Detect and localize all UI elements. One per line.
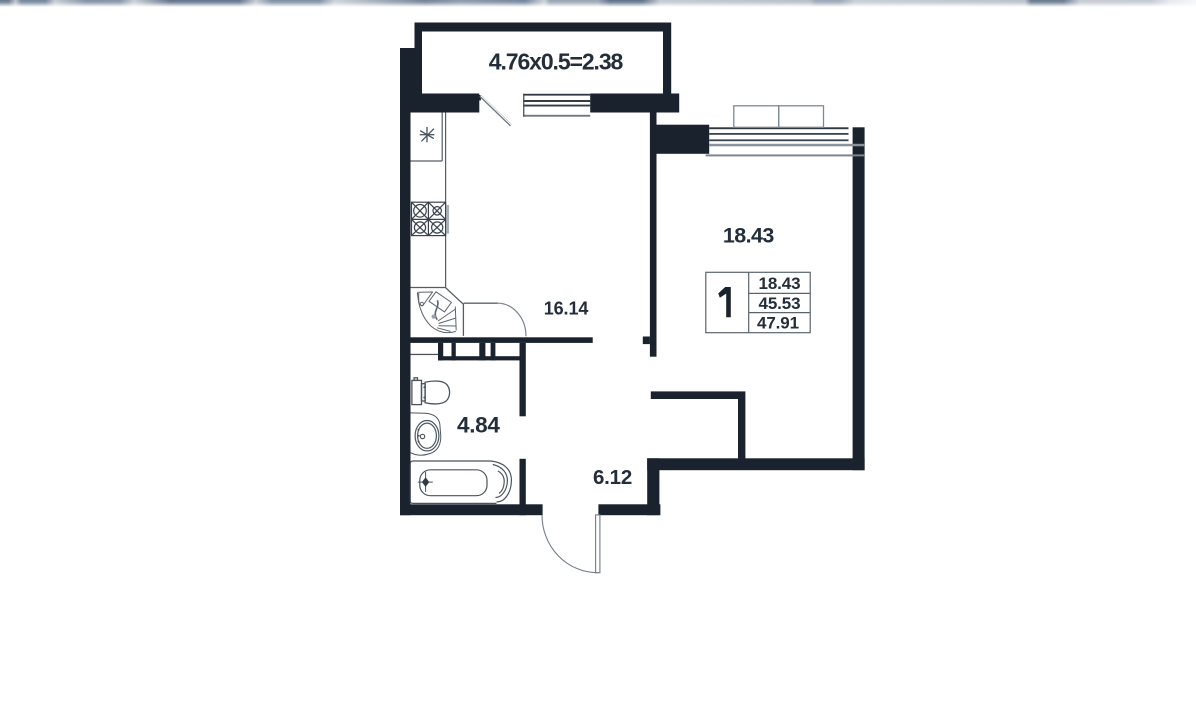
svg-text:18.43: 18.43: [723, 223, 774, 247]
svg-text:6.12: 6.12: [593, 466, 632, 489]
svg-text:18.43: 18.43: [758, 274, 800, 293]
svg-text:4.76x0.5=2.38: 4.76x0.5=2.38: [489, 49, 624, 75]
svg-text:45.53: 45.53: [758, 294, 800, 313]
svg-text:47.91: 47.91: [757, 314, 799, 333]
svg-text:4.84: 4.84: [457, 413, 500, 438]
svg-text:16.14: 16.14: [544, 299, 589, 319]
